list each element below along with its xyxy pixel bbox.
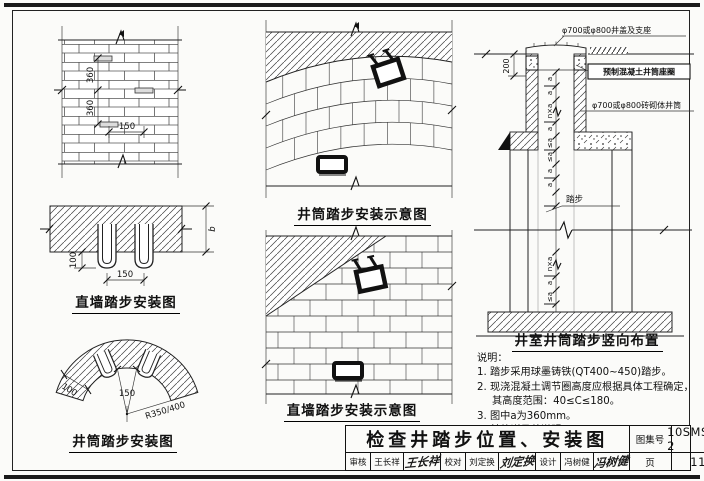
straight-wall-install-diagram: 100 150 b (22, 200, 237, 292)
dim-b: b (208, 226, 218, 231)
label-step: 踏步 (566, 194, 583, 205)
label-seat-ring: 预制混凝土井筒座圈 (603, 67, 675, 77)
chain-label: a (546, 91, 554, 95)
label-shaft: φ700或φ800砖砌体井筒 (592, 100, 681, 110)
check-label: 校对 (440, 453, 465, 470)
corbel-wedge (498, 132, 510, 150)
dim-150: 150 (119, 389, 135, 399)
corbel-left (510, 132, 538, 150)
note-item-continuation: 其高度范围：40≤C≤180。 (477, 395, 695, 409)
page-label: 页 (629, 452, 671, 470)
shaft-schematic-diagram (256, 20, 462, 210)
notes-heading: 说明： (477, 352, 695, 366)
chain-label: a (546, 183, 554, 187)
dim-150: 150 (119, 122, 135, 132)
page-number: 114 (671, 452, 704, 470)
straight-wall-schematic-diagram (256, 226, 462, 412)
sheet-bottom-border (4, 475, 700, 479)
chain-label: a (546, 127, 554, 131)
title-block: 检查井踏步位置、安装图 图集号 10SMS202-2 审核 王长祥 王长祥 校对… (345, 425, 691, 471)
step-channel (98, 224, 116, 268)
drawing-sheet: 360 360 150 100 150 (0, 0, 704, 481)
review-label: 审核 (346, 453, 370, 470)
chain-label: ≤a (546, 152, 554, 162)
approvals-row: 审核 王长祥 王长祥 校对 刘定换 刘定换 设计 冯树健 冯树健 (346, 452, 629, 470)
note-item: 2. 现浇混凝土调节圈高度应根据具体工程确定， (477, 381, 695, 395)
seat-ring (526, 56, 538, 70)
review-name: 王长祥 (370, 453, 403, 470)
note-item: 1. 踏步采用球墨铸铁(QT400~450)踏步。 (477, 366, 695, 380)
straight-schematic-svg (256, 226, 462, 412)
chamber-slab-right (574, 132, 632, 150)
dim-360-lower: 360 (86, 100, 96, 116)
cast-iron-step (352, 255, 386, 292)
dim-150: 150 (117, 270, 133, 280)
shaft-install-diagram: 150 100 R350/400 (16, 320, 251, 438)
caption-straight-wall-install: 直墙踏步安装图 (46, 291, 206, 314)
cast-iron-step (318, 157, 346, 175)
sheet-title: 检查井踏步位置、安装图 (346, 426, 629, 452)
design-signature: 冯树健 (593, 453, 629, 470)
check-name: 刘定换 (465, 453, 498, 470)
note-item: 3. 图中a为360mm。 (477, 410, 695, 424)
dim-360-upper: 360 (86, 67, 96, 83)
vertical-layout-diagram: 200 φ700或φ800井盖及支座 预制混凝土井筒座圈 φ700或φ800砖砌… (468, 20, 700, 344)
dim-radius: R350/400 (144, 400, 186, 422)
chain-label: n×a (546, 104, 554, 119)
label-cover: φ700或φ800井盖及支座 (562, 25, 651, 35)
shaft-schematic-svg (256, 20, 462, 210)
cast-iron-step (334, 363, 362, 381)
dim-200: 200 (502, 58, 511, 73)
caption-shaft-schematic: 井筒踏步安装示意图 (280, 203, 445, 226)
caption-shaft-install: 井筒踏步安装图 (43, 430, 203, 453)
dim-100: 100 (69, 252, 79, 268)
chain-label: n×a (546, 257, 554, 272)
review-signature: 王长祥 (403, 453, 440, 470)
atlas-no-label: 图集号 (629, 426, 671, 452)
chain-label: ≤a (546, 138, 554, 148)
design-name: 冯树健 (560, 453, 593, 470)
brick-wall (62, 40, 178, 164)
chain-label: ≤a (546, 292, 554, 302)
design-label: 设计 (535, 453, 560, 470)
step-mark (94, 56, 112, 61)
atlas-no-value: 10SMS202-2 (671, 426, 704, 452)
check-signature: 刘定换 (498, 453, 535, 470)
step-channel (135, 224, 153, 268)
chain-label: a (546, 169, 554, 173)
manhole-cover (526, 45, 586, 54)
cut-hatch (266, 32, 452, 82)
chain-label: a (546, 281, 554, 285)
step-mark (135, 88, 153, 93)
caption-vertical-layout: 井室井筒踏步竖向布置 (497, 329, 677, 352)
seat-ring (574, 56, 586, 70)
caption-straight-wall-schematic: 直墙踏步安装示意图 (272, 399, 432, 422)
sheet-top-border (4, 3, 700, 7)
soil-hatch (590, 47, 628, 54)
chain-label: a (546, 77, 554, 81)
wall-elevation-diagram: 360 360 150 (34, 26, 224, 194)
